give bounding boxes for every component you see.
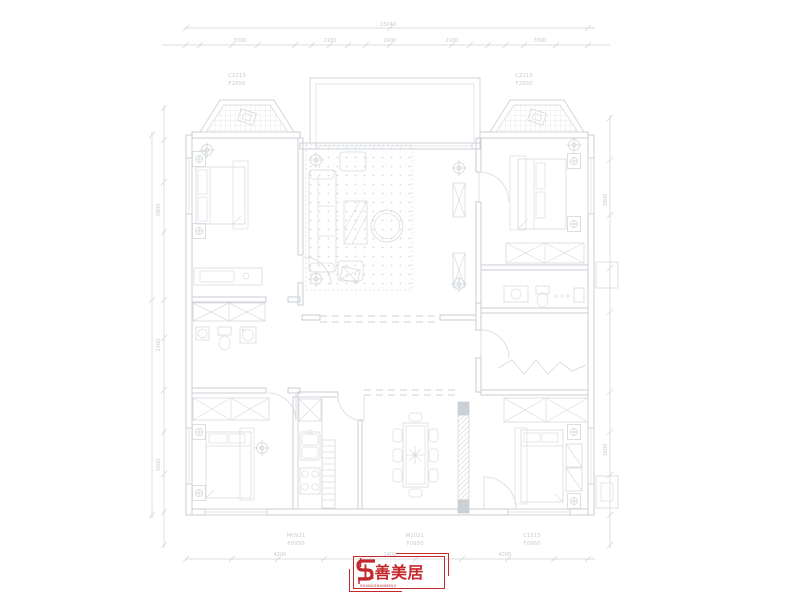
dim-right-seg: 3600 bbox=[603, 444, 609, 457]
dim-top-seg: 2100 bbox=[446, 38, 459, 44]
dim-left-seg: 3900 bbox=[156, 204, 162, 217]
dim-top-seg: 3300 bbox=[234, 38, 247, 44]
dim-top-seg: 3300 bbox=[534, 38, 547, 44]
label-bedroom4-window: C1515 bbox=[523, 533, 541, 539]
logo-subline: SHANGSHANMEIJU bbox=[360, 585, 397, 589]
label-bay-right: F2650 bbox=[515, 81, 533, 87]
floor-plan-canvas: 15240 3300 2100 2400 2100 3300 3900 2100… bbox=[0, 0, 800, 600]
glass-partition bbox=[458, 402, 469, 513]
logo-s-glyph-icon bbox=[354, 557, 378, 585]
label-dining-door: M1021 bbox=[406, 533, 425, 539]
label-dining-door: F0950 bbox=[406, 541, 424, 547]
label-kitchen-door: F0950 bbox=[287, 541, 305, 547]
label-kitchen-door: M0921 bbox=[287, 533, 306, 539]
dim-top-seg: 2400 bbox=[384, 38, 397, 44]
dim-left-seg: 2100 bbox=[156, 339, 162, 352]
dim-bottom-seg: 4200 bbox=[274, 552, 287, 558]
floor-plan-svg: 15240 3300 2100 2400 2100 3300 3900 2100… bbox=[0, 0, 800, 600]
label-bay-left: C2215 bbox=[228, 73, 246, 79]
dim-left-seg: 3600 bbox=[156, 459, 162, 472]
dim-right-seg: 3900 bbox=[603, 194, 609, 207]
brand-logo: 上善美居 SHANGSHANMEIJU bbox=[349, 553, 449, 592]
label-bay-left: F2650 bbox=[228, 81, 246, 87]
paper-background bbox=[0, 0, 800, 600]
label-bedroom4-window: F0950 bbox=[523, 541, 541, 547]
label-bay-right: C2215 bbox=[515, 73, 533, 79]
dim-bottom-seg: 4200 bbox=[499, 552, 512, 558]
dim-top-seg: 2100 bbox=[324, 38, 337, 44]
dim-overall-top: 15240 bbox=[380, 22, 396, 28]
